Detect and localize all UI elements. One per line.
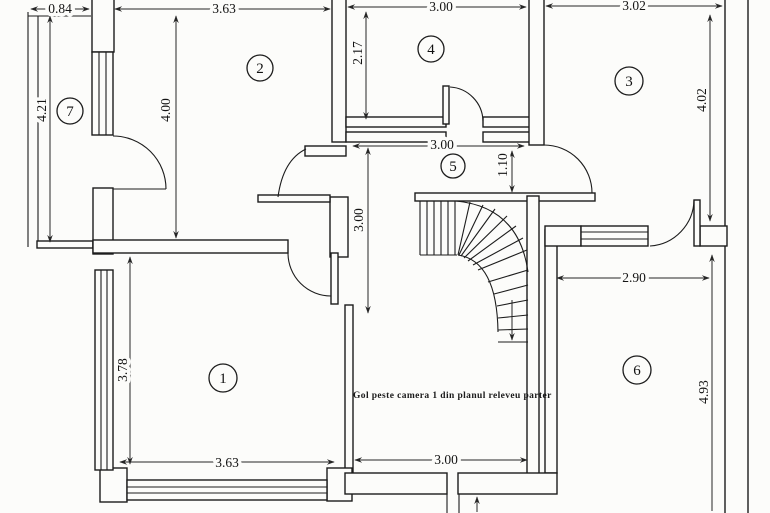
- dim-label-room6-height: 4.93: [696, 380, 711, 404]
- wall-segment: [529, 0, 544, 145]
- wall-segment: [92, 0, 114, 52]
- room-number-7: 7: [66, 104, 74, 120]
- room-label-2: 2: [247, 55, 273, 81]
- stair-outer-stringer: [456, 201, 528, 272]
- wall-segment: [700, 226, 727, 246]
- dim-label-hall-width: 3.00: [430, 137, 454, 152]
- dim-label-room2-height: 4.00: [158, 98, 173, 122]
- room-number-6: 6: [633, 363, 641, 379]
- room-number-1: 1: [219, 371, 227, 387]
- wall-segment: [345, 473, 447, 494]
- dim-label-top-room2: 3.63: [212, 1, 236, 16]
- wall-segment: [545, 226, 581, 246]
- wall-segment: [330, 197, 348, 257]
- wall-segment: [93, 240, 288, 253]
- balcony-floor-edge: [37, 241, 93, 248]
- dim-label-bottom-room1: 3.63: [215, 455, 239, 470]
- wall-segment: [305, 146, 346, 156]
- room-label-7: 7: [57, 98, 83, 124]
- window-room1-bottom: [127, 480, 327, 500]
- dim-label-balcony-height: 4.21: [34, 98, 49, 122]
- void-note: Gol peste camera 1 din planul releveu pa…: [353, 391, 552, 401]
- window-room6-top: [581, 226, 648, 246]
- room-number-4: 4: [427, 42, 435, 58]
- room-number-2: 2: [256, 61, 264, 77]
- wall-segment: [258, 195, 330, 202]
- dim-label-room3-height: 4.02: [694, 88, 709, 112]
- walls: [28, 0, 748, 513]
- dim-label-room1-height: 3.78: [115, 358, 130, 382]
- wall-segment: [483, 132, 530, 142]
- dim-label-top-balcony: 0.84: [48, 1, 72, 16]
- room-label-1: 1: [209, 364, 237, 392]
- staircase: [420, 201, 528, 342]
- dimension-lines: [31, 6, 722, 511]
- wall-segment: [458, 473, 557, 494]
- door-room4: [443, 86, 483, 124]
- room-label-6: 6: [623, 356, 651, 384]
- dim-label-room6-width: 2.90: [622, 270, 646, 285]
- dim-label-corridor-width: 1.10: [495, 153, 510, 177]
- door-room3: [544, 145, 592, 193]
- wall-corner: [100, 468, 127, 502]
- room-label-3: 3: [615, 67, 643, 95]
- window-room1-left: [95, 270, 113, 470]
- wall-segment: [332, 0, 346, 142]
- door-balcony: [113, 136, 166, 189]
- wall-segment: [345, 305, 353, 475]
- wall-segment: [725, 0, 748, 513]
- room-number-5: 5: [449, 159, 457, 175]
- room-number-3: 3: [625, 74, 633, 90]
- stair-right-wall: [527, 196, 539, 490]
- door-room2-hall: [278, 149, 306, 197]
- stair-lower-treads: [488, 270, 528, 342]
- dim-label-top-room3: 3.02: [622, 0, 646, 13]
- door-room6-corridor: [650, 200, 700, 246]
- floor-plan-drawing: 0.84 3.63 3.00 3.02 4.21 4.00 2.17 4.02 …: [0, 0, 770, 513]
- dim-label-hall-height: 3.00: [351, 208, 366, 232]
- dim-label-top-room4: 3.00: [429, 0, 453, 14]
- wall-segment: [346, 117, 446, 127]
- room-label-4: 4: [418, 36, 444, 62]
- window-balcony: [92, 52, 113, 135]
- stair-top-wall: [415, 193, 595, 201]
- wall-segment: [483, 117, 530, 127]
- door-room1: [288, 253, 338, 304]
- room-label-5: 5: [441, 154, 465, 178]
- dim-label-bottom-hall: 3.00: [434, 452, 458, 467]
- dim-label-room4-height: 2.17: [350, 41, 365, 65]
- room6-left-wall: [545, 230, 557, 473]
- stair-inner-stringer: [458, 255, 498, 332]
- floor-plan-sheet: 0.84 3.63 3.00 3.02 4.21 4.00 2.17 4.02 …: [0, 0, 770, 513]
